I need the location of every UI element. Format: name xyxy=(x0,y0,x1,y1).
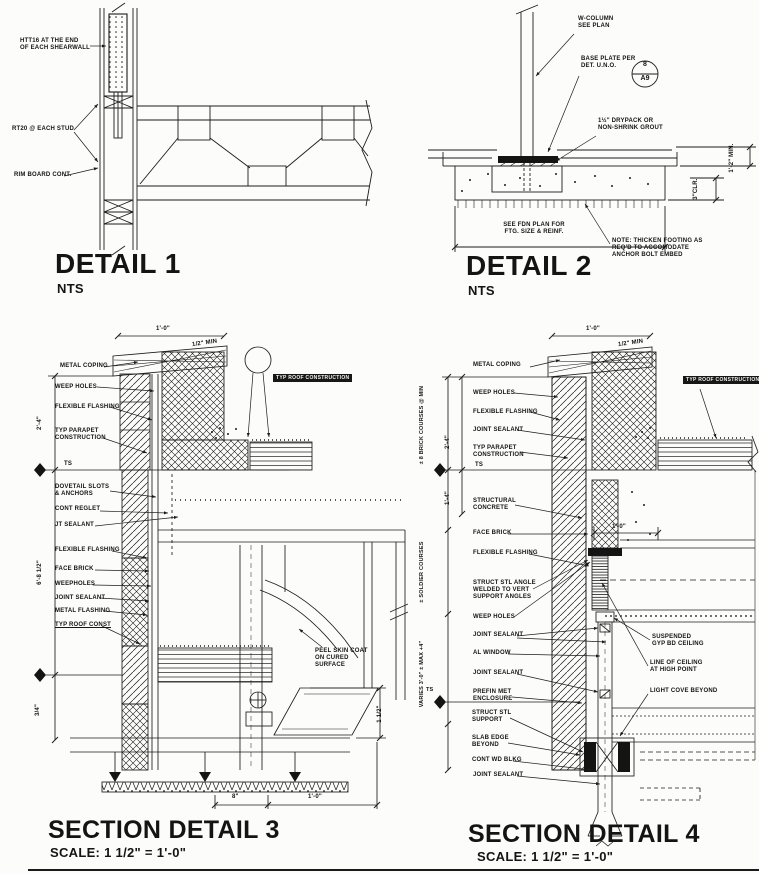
detail3-title: SECTION DETAIL 3 xyxy=(48,816,280,845)
label-holdown: HTT16 AT THE END OF EACH SHEARWALL xyxy=(20,38,98,52)
label-d4-flexible-flashing-2: FLEXIBLE FLASHING xyxy=(473,550,543,557)
dim-d4-soldier: ± SOLDIER COURSES xyxy=(418,530,426,614)
detail2-linework xyxy=(428,5,756,252)
sheet-edge-line xyxy=(28,869,759,871)
label-d3-weepholes: WEEPHOLES xyxy=(55,581,105,588)
label-footing-note: NOTE: THICKEN FOOTING AS REQ'D TO ACCOMO… xyxy=(612,238,722,260)
detail1-linework xyxy=(64,3,372,255)
detail1-title: DETAIL 1 xyxy=(55,248,181,280)
label-d4-prefin: PREFIN MET ENCLOSURE xyxy=(473,689,528,703)
detail3-scale: SCALE: 1 1/2" = 1'-0" xyxy=(50,845,186,860)
label-d3-typ-roof-const: TYP ROOF CONST xyxy=(55,622,117,629)
label-rim-board: RIM BOARD CONT. xyxy=(14,172,84,179)
label-d4-struct-stl-angle: STRUCT STL ANGLE WELDED TO VERT SUPPORT … xyxy=(473,580,541,602)
label-d4-suspended: SUSPENDED GYP BD CEILING xyxy=(652,634,712,648)
dim-d4-1-0: 1'-0" xyxy=(612,524,642,531)
label-d3-dovetail: DOVETAIL SLOTS & ANCHORS xyxy=(55,484,117,498)
detail-bubble-sheet: A9 xyxy=(634,75,656,82)
label-d3-weep-holes: WEEP HOLES xyxy=(55,384,115,391)
dim-d3-2-4: 2'-4" xyxy=(36,376,44,470)
dim-footing-min: 1'-2" MIN. xyxy=(728,136,736,180)
label-d3-flexible-flashing-2: FLEXIBLE FLASHING xyxy=(55,547,125,554)
label-d4-al-window: AL WINDOW xyxy=(473,650,528,657)
dim-d3-1-0: 1'-0" xyxy=(308,794,338,801)
detail-bubble-number: 8 xyxy=(634,61,656,68)
label-d3-ts: TS xyxy=(64,461,84,468)
dim-d3-top: 1'-0" xyxy=(156,326,186,333)
label-d4-ts-2: TS xyxy=(426,687,442,694)
label-d3-typ-roof-construction: TYP ROOF CONSTRUCTION xyxy=(273,374,352,382)
label-d3-metal-flashing: METAL FLASHING xyxy=(55,608,117,615)
label-d4-structural-concrete: STRUCTURAL CONCRETE xyxy=(473,498,533,512)
label-d4-metal-coping: METAL COPING xyxy=(473,362,533,369)
label-d3-peel-skin: PEEL SKIN COAT ON CURED SURFACE xyxy=(315,648,370,670)
label-d4-joint-sealant-2: JOINT SEALANT xyxy=(473,632,533,639)
label-d4-typ-parapet: TYP PARAPET CONSTRUCTION xyxy=(473,445,533,459)
label-strap: RT20 @ EACH STUD xyxy=(12,126,82,133)
label-d4-slab-edge: SLAB EDGE BEYOND xyxy=(472,735,527,749)
label-d3-typ-parapet: TYP PARAPET CONSTRUCTION xyxy=(55,428,115,442)
detail2-scale: NTS xyxy=(468,283,495,298)
detail4-scale: SCALE: 1 1/2" = 1'-0" xyxy=(477,849,613,864)
label-d4-joint-sealant-1: JOINT SEALANT xyxy=(473,427,533,434)
label-d4-face-brick: FACE BRICK xyxy=(473,530,523,537)
label-d4-ts: TS xyxy=(475,462,495,469)
label-d3-cont-reglet: CONT REGLET xyxy=(55,506,115,513)
dim-footing-clr: 3"CLR. xyxy=(692,172,700,206)
label-d3-joint-sealant: JOINT SEALANT xyxy=(55,595,115,602)
label-d4-cont-wd-blkg: CONT WD BLKG xyxy=(472,757,534,764)
dim-d4-brick-courses: ± 8 BRICK COURSES @ MIN xyxy=(418,380,426,470)
label-fdn-plan: SEE FDN PLAN FOR FTG. SIZE & REINF. xyxy=(488,222,580,236)
dim-d4-2-4: 2'-4" xyxy=(444,414,452,470)
label-d4-weep-holes-1: WEEP HOLES xyxy=(473,390,528,397)
dim-d3-1-1-2: 1 1/2" xyxy=(376,690,384,738)
label-d4-light-cove: LIGHT COVE BEYOND xyxy=(650,688,725,695)
detail2-title: DETAIL 2 xyxy=(466,250,592,282)
label-d4-weep-holes-2: WEEP HOLES xyxy=(473,614,528,621)
label-d4-typ-roof-construction: TYP ROOF CONSTRUCTION xyxy=(683,376,759,384)
detail4-title: SECTION DETAIL 4 xyxy=(468,820,700,849)
label-d3-metal-coping: METAL COPING xyxy=(60,363,120,370)
drawing-sheet: HTT16 AT THE END OF EACH SHEARWALL RT20 … xyxy=(0,0,759,874)
dim-d3-8in: 8" xyxy=(232,794,252,801)
dim-d4-varies: VARIES 3'-0" ± MAX +4" xyxy=(418,624,426,724)
label-d4-struct-stl-support: STRUCT STL SUPPORT xyxy=(472,710,527,724)
label-d4-joint-sealant-4: JOINT SEALANT xyxy=(473,772,533,779)
label-d3-face-brick: FACE BRICK xyxy=(55,566,105,573)
label-d4-flexible-flashing-1: FLEXIBLE FLASHING xyxy=(473,409,543,416)
label-d3-jt-sealant: JT SEALANT xyxy=(55,522,105,529)
label-column: W-COLUMN SEE PLAN xyxy=(578,16,638,30)
label-grout: 1½" DRYPACK OR NON-SHRINK GROUT xyxy=(598,118,670,132)
detail1-scale: NTS xyxy=(57,281,84,296)
dim-d4-top: 1'-0" xyxy=(586,326,616,333)
label-d4-joint-sealant-3: JOINT SEALANT xyxy=(473,670,533,677)
label-d4-line-of-ceiling: LINE OF CEILING AT HIGH POINT xyxy=(650,660,712,674)
dim-d4-1-4: 1'-4" xyxy=(444,482,452,514)
dim-d3-6-8: 6'-8 1/2" xyxy=(36,470,44,675)
label-d3-flexible-flashing-1: FLEXIBLE FLASHING xyxy=(55,404,125,411)
dim-d3-3-4: 3/4" xyxy=(34,680,42,740)
